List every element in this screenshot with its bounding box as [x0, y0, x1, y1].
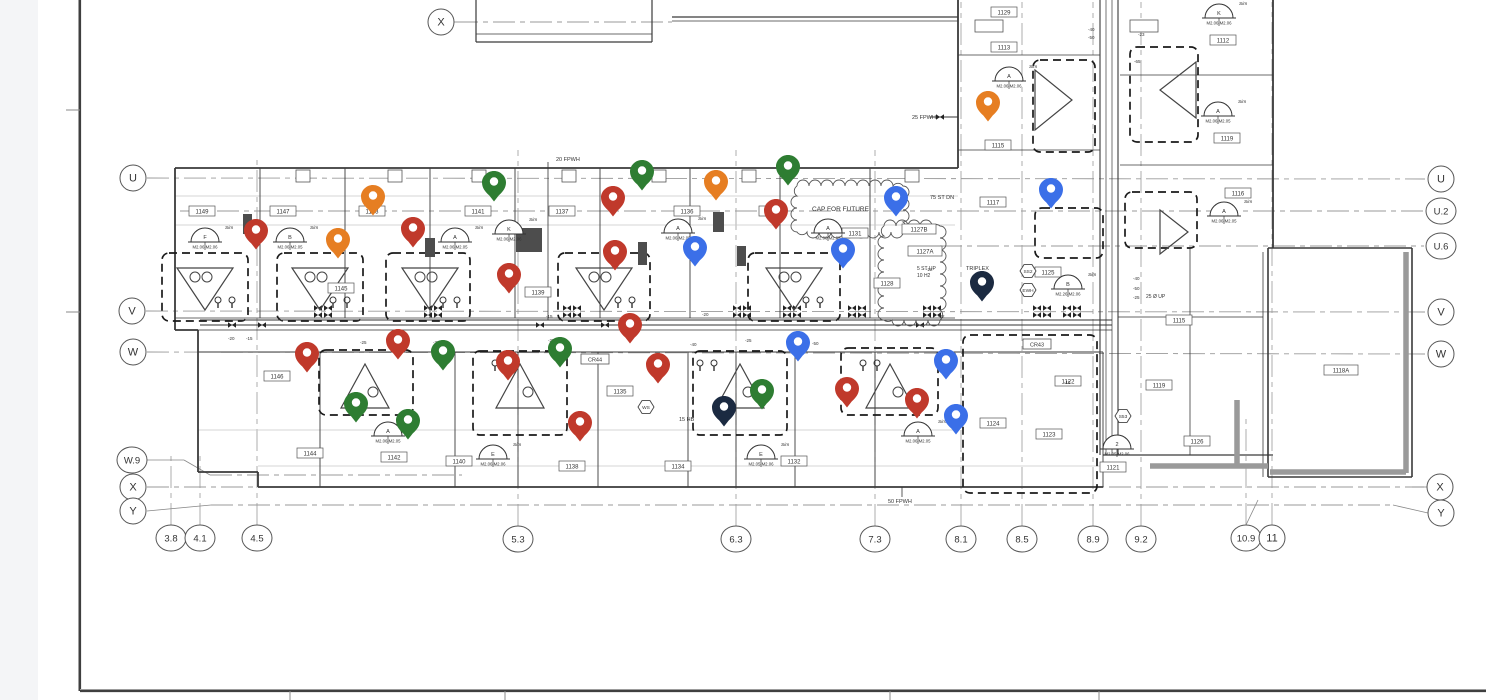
- svg-text:20 FPWH: 20 FPWH: [556, 157, 580, 163]
- svg-text:Sim: Sim: [310, 225, 318, 231]
- svg-text:15 HB: 15 HB: [679, 417, 695, 423]
- svg-text:M2.06 M2.05: M2.06 M2.05: [905, 439, 931, 444]
- svg-text:V: V: [1437, 307, 1445, 319]
- svg-text:-50: -50: [1088, 35, 1095, 40]
- svg-text:SS2: SS2: [1023, 269, 1032, 275]
- svg-text:5.3: 5.3: [511, 535, 524, 546]
- svg-text:M2.06 M2.06: M2.06 M2.06: [496, 237, 522, 242]
- room-number: 1119: [1221, 136, 1234, 142]
- svg-text:M2.06 M2.05: M2.06 M2.05: [277, 245, 303, 250]
- svg-text:S53: S53: [1119, 414, 1128, 420]
- room-number: 1140: [453, 459, 467, 465]
- room-number: 1116: [1232, 191, 1245, 197]
- room-number: 1125: [1042, 270, 1056, 276]
- svg-text:4.5: 4.5: [250, 534, 263, 545]
- map-pin-red[interactable]: [496, 350, 520, 381]
- svg-text:M2.06 M2.06: M2.06 M2.06: [1206, 21, 1232, 26]
- svg-text:Y: Y: [129, 506, 137, 518]
- svg-text:M2.26 M2.06: M2.26 M2.06: [1055, 292, 1081, 297]
- map-pin-red[interactable]: [905, 388, 929, 419]
- svg-text:B: B: [1066, 282, 1070, 288]
- map-pin-blue[interactable]: [1039, 178, 1063, 209]
- room-number: 1141: [472, 209, 486, 215]
- svg-text:Sim: Sim: [513, 442, 521, 448]
- room-number: 1123: [1043, 432, 1057, 438]
- room-number: 1127B: [911, 227, 928, 233]
- room-number: 1117: [987, 200, 1000, 206]
- svg-text:M2.06 M2.06: M2.06 M2.06: [996, 84, 1022, 89]
- svg-text:-25: -25: [360, 340, 367, 345]
- room-number: 1121: [1107, 465, 1121, 471]
- room-number: 1135: [614, 389, 628, 395]
- svg-text:25 Ø UP: 25 Ø UP: [1146, 294, 1166, 300]
- svg-text:-15: -15: [246, 336, 253, 341]
- room-number: 1118A: [1333, 368, 1349, 374]
- svg-text:-23: -23: [1138, 32, 1145, 37]
- room-number: 1113: [998, 45, 1011, 51]
- svg-text:X: X: [437, 17, 445, 29]
- map-pin-green[interactable]: [548, 337, 572, 368]
- svg-text:A: A: [1216, 109, 1220, 115]
- svg-text:V: V: [128, 306, 136, 318]
- svg-text:-40: -40: [1133, 276, 1140, 281]
- svg-text:E: E: [759, 452, 763, 458]
- map-pin-red[interactable]: [601, 186, 625, 217]
- map-pin-blue[interactable]: [884, 186, 908, 217]
- svg-text:M2.06 M2.06: M2.06 M2.06: [480, 462, 506, 467]
- svg-text:A: A: [676, 226, 680, 232]
- room-number: 1129: [998, 10, 1012, 16]
- svg-text:U: U: [129, 173, 137, 185]
- map-pin-red[interactable]: [568, 411, 592, 442]
- room-number: 1149: [196, 209, 210, 215]
- svg-text:A: A: [1007, 74, 1011, 80]
- room-number: 1115: [992, 143, 1005, 149]
- svg-text:A: A: [1222, 209, 1226, 215]
- map-pin-red[interactable]: [401, 217, 425, 248]
- svg-text:U: U: [1437, 174, 1445, 186]
- map-pin-green[interactable]: [482, 171, 506, 202]
- svg-text:-25: -25: [745, 338, 752, 343]
- svg-text:CAP FOR FUTURE: CAP FOR FUTURE: [812, 206, 870, 213]
- map-pin-blue[interactable]: [934, 349, 958, 380]
- map-pin-red[interactable]: [244, 219, 268, 250]
- svg-text:Sim: Sim: [1029, 64, 1037, 70]
- svg-text:U.6: U.6: [1434, 242, 1449, 253]
- room-number: 1138: [566, 464, 580, 470]
- svg-text:M2.06 M2.05: M2.06 M2.05: [1205, 119, 1231, 124]
- svg-text:CR43: CR43: [1030, 342, 1044, 348]
- svg-text:-65: -65: [1134, 59, 1141, 64]
- room-number: 1127A: [917, 249, 934, 255]
- map-pin-orange[interactable]: [976, 91, 1000, 122]
- svg-text:9.2: 9.2: [1134, 535, 1147, 546]
- room-number: 1119: [1153, 383, 1166, 389]
- svg-text:8.5: 8.5: [1015, 535, 1028, 546]
- svg-text:Sim: Sim: [698, 216, 706, 222]
- room-number: 1112: [1217, 38, 1230, 44]
- svg-text:X: X: [1436, 482, 1444, 494]
- svg-text:-20: -20: [702, 312, 709, 317]
- svg-text:-40: -40: [690, 342, 697, 347]
- room-number: 1146: [271, 374, 285, 380]
- svg-text:Y: Y: [1437, 508, 1445, 520]
- room-number: 1128: [881, 281, 895, 287]
- svg-text:25 FPWH: 25 FPWH: [912, 115, 936, 121]
- map-pin-blue[interactable]: [831, 238, 855, 269]
- map-pin-red[interactable]: [618, 313, 642, 344]
- map-pin-orange[interactable]: [326, 228, 350, 259]
- map-pin-green[interactable]: [630, 160, 654, 191]
- svg-text:2: 2: [1115, 442, 1118, 448]
- map-pin-red[interactable]: [603, 240, 627, 271]
- svg-text:W: W: [128, 347, 139, 359]
- svg-text:4.1: 4.1: [193, 534, 206, 545]
- room-number: 1134: [672, 464, 686, 470]
- svg-text:A: A: [386, 429, 390, 435]
- svg-text:-15: -15: [1064, 380, 1071, 385]
- map-pin-blue[interactable]: [683, 236, 707, 267]
- svg-text:10.9: 10.9: [1237, 534, 1256, 545]
- map-pin-red[interactable]: [497, 263, 521, 294]
- svg-text:8.9: 8.9: [1086, 535, 1099, 546]
- svg-text:WS: WS: [642, 405, 650, 411]
- map-pin-red[interactable]: [386, 329, 410, 360]
- svg-text:Sim: Sim: [1244, 199, 1252, 205]
- svg-text:M2.06 M2.05: M2.06 M2.05: [442, 245, 468, 250]
- room-number: 1142: [388, 455, 402, 461]
- room-number: 1147: [277, 209, 291, 215]
- map-pin-blue[interactable]: [786, 331, 810, 362]
- room-number: 1136: [681, 209, 695, 215]
- svg-text:3.8: 3.8: [164, 534, 177, 545]
- svg-text:X: X: [129, 482, 137, 494]
- svg-text:M2.06 M2.05: M2.06 M2.05: [375, 439, 401, 444]
- svg-text:E: E: [491, 452, 495, 458]
- svg-text:-20: -20: [228, 336, 235, 341]
- map-pin-green[interactable]: [431, 340, 455, 371]
- svg-text:B: B: [288, 235, 292, 241]
- svg-text:W.9: W.9: [124, 456, 140, 467]
- svg-text:A: A: [453, 235, 457, 241]
- svg-text:-32: -32: [938, 314, 945, 319]
- svg-text:Sim: Sim: [1238, 99, 1246, 105]
- svg-text:75 ST DN: 75 ST DN: [930, 195, 954, 201]
- svg-text:7.3: 7.3: [868, 535, 881, 546]
- room-number: 1126: [1191, 439, 1205, 445]
- room-number: 1115: [1173, 318, 1186, 324]
- svg-text:Sim: Sim: [781, 442, 789, 448]
- map-pin-green[interactable]: [750, 379, 774, 410]
- map-pin-navy[interactable]: [712, 396, 736, 427]
- map-pin-red[interactable]: [295, 342, 319, 373]
- svg-text:-50: -50: [1133, 286, 1140, 291]
- svg-text:W: W: [1436, 349, 1447, 361]
- room-number: 1132: [788, 459, 802, 465]
- map-pin-red[interactable]: [646, 353, 670, 384]
- map-pin-red[interactable]: [835, 377, 859, 408]
- svg-text:Sim: Sim: [529, 217, 537, 223]
- svg-text:M2.05 M2.06: M2.05 M2.06: [748, 462, 774, 467]
- svg-text:50 FPWH: 50 FPWH: [888, 499, 912, 505]
- room-number: 1131: [849, 231, 863, 237]
- svg-text:Sim: Sim: [475, 225, 483, 231]
- map-pin-navy[interactable]: [970, 271, 994, 302]
- svg-text:8.1: 8.1: [954, 535, 967, 546]
- svg-text:11: 11: [1266, 533, 1277, 545]
- svg-text:EWH: EWH: [1022, 288, 1034, 294]
- svg-text:Sim: Sim: [225, 225, 233, 231]
- svg-text:6.3: 6.3: [729, 535, 742, 546]
- svg-text:TRIPLEX: TRIPLEX: [966, 266, 989, 272]
- svg-text:K: K: [1217, 11, 1221, 17]
- svg-text:-15: -15: [546, 314, 553, 319]
- svg-text:M2.06 M2.05: M2.06 M2.05: [1211, 219, 1237, 224]
- map-pin-green[interactable]: [344, 392, 368, 423]
- room-number: 1145: [335, 286, 349, 292]
- room-number: 1144: [304, 451, 318, 457]
- svg-text:K: K: [507, 227, 511, 233]
- svg-text:M2.05 M2.06: M2.05 M2.06: [1104, 452, 1130, 457]
- room-number: 1124: [987, 421, 1001, 427]
- svg-text:-40: -40: [1088, 27, 1095, 32]
- svg-text:A: A: [916, 429, 920, 435]
- svg-text:A: A: [826, 226, 830, 232]
- floorplan-svg[interactable]: 1149114711431141113711361133113111451139…: [0, 0, 1486, 700]
- svg-text:10 H2: 10 H2: [917, 273, 931, 279]
- svg-text:U.2: U.2: [1434, 207, 1449, 218]
- svg-text:Sim: Sim: [1088, 272, 1096, 278]
- svg-text:CR44: CR44: [588, 357, 602, 363]
- svg-text:-25: -25: [1133, 295, 1140, 300]
- room-number: 1139: [532, 290, 546, 296]
- room-number: 1137: [556, 209, 570, 215]
- svg-text:-50: -50: [812, 341, 819, 346]
- svg-text:M2.06 M2.06: M2.06 M2.06: [192, 245, 218, 250]
- svg-text:-22: -22: [926, 267, 933, 272]
- svg-text:Sim: Sim: [1239, 1, 1247, 7]
